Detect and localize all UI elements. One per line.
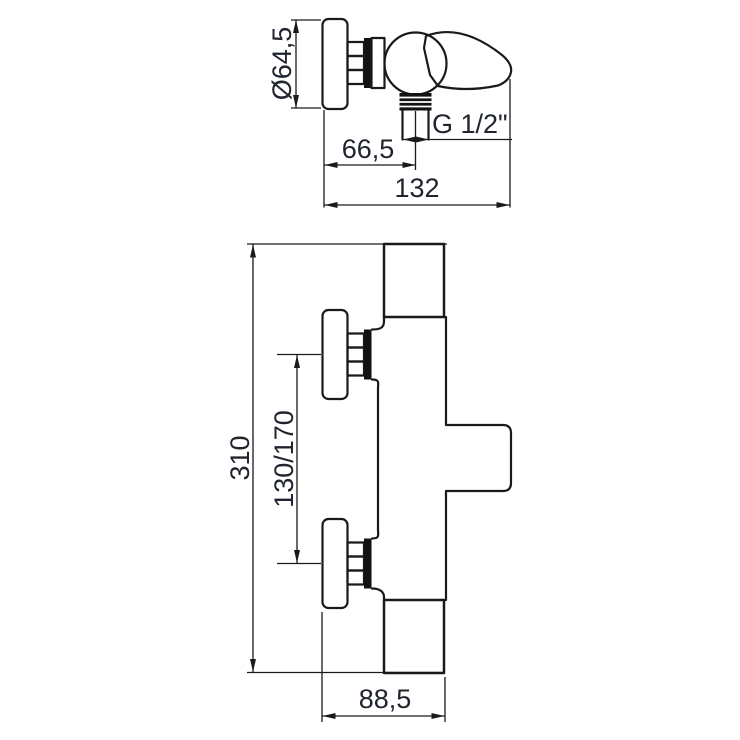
arrowhead-right xyxy=(403,162,416,168)
diameter-dimension-label: Ø64,5 xyxy=(267,27,297,101)
wall-connection-upper xyxy=(323,310,372,399)
body-connector-side xyxy=(372,38,385,88)
thread-ring xyxy=(348,56,365,70)
body-outline-left-lower xyxy=(372,589,384,601)
arrowhead-right xyxy=(497,202,510,208)
arrowhead-right xyxy=(416,137,429,143)
mixer-side-view: Ø64,5 66,5 132 G 1/2" xyxy=(267,19,512,208)
arrowhead-up xyxy=(294,355,300,368)
connection-nut-upper xyxy=(364,330,372,380)
arrowhead-down xyxy=(250,659,256,672)
knurled-handle-bottom xyxy=(384,600,444,673)
body-outline-left-upper xyxy=(372,317,384,330)
outlet-thread xyxy=(400,93,432,111)
connection-nut-lower xyxy=(364,539,372,589)
arrowhead-left xyxy=(403,137,416,143)
spacing-dimension-label: 130/170 xyxy=(269,410,299,508)
body-outline-left-middle xyxy=(372,380,378,539)
arrowhead-right xyxy=(432,713,445,719)
depth-dimension-label: 132 xyxy=(394,173,439,203)
thread-ring xyxy=(348,348,365,362)
thread-ring xyxy=(348,557,365,571)
flange-thread-rings-side xyxy=(348,42,365,84)
arrowhead-down xyxy=(294,550,300,563)
mixer-dimension-drawing: Ø64,5 66,5 132 G 1/2" xyxy=(0,0,740,740)
projection-dimension-label: 88,5 xyxy=(359,684,412,714)
mixer-front-view: 310 130/170 88,5 xyxy=(225,244,511,722)
wall-connection-lower xyxy=(323,519,372,608)
thread-ring xyxy=(348,42,365,56)
thread-size-label: G 1/2" xyxy=(432,109,508,139)
body-outline-right xyxy=(444,317,511,600)
arrowhead-up xyxy=(250,245,256,258)
thread-ring xyxy=(348,571,365,585)
arrowhead-left xyxy=(325,202,338,208)
knurled-handle-top xyxy=(384,244,444,317)
height-dimension-label: 310 xyxy=(225,435,255,480)
arrowhead-left xyxy=(323,713,336,719)
wall-flange-upper xyxy=(323,310,348,399)
thread-ring xyxy=(348,70,365,84)
thread-ring xyxy=(348,362,365,376)
connection-nut-side xyxy=(364,38,372,88)
mixer-body-circle xyxy=(385,33,447,95)
arrowhead-left xyxy=(325,162,338,168)
wall-flange-side xyxy=(323,19,348,109)
thread-ring xyxy=(348,334,365,348)
thread-ring xyxy=(348,543,365,557)
wall-flange-lower xyxy=(323,519,348,608)
offset-dimension-label: 66,5 xyxy=(342,134,395,164)
technical-drawing-page: Ø64,5 66,5 132 G 1/2" xyxy=(0,0,740,740)
